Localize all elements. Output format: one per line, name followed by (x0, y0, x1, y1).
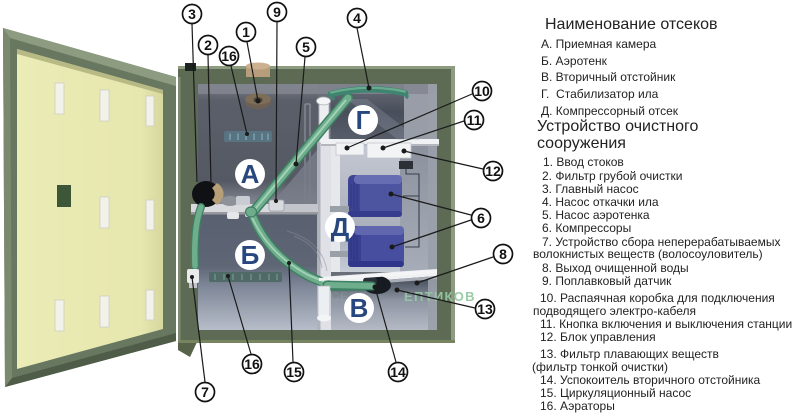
svg-text:8: 8 (499, 246, 507, 262)
svg-text:Д: Д (331, 212, 350, 242)
svg-text:11: 11 (467, 112, 482, 128)
svg-text:3: 3 (188, 6, 196, 22)
svg-text:Г: Г (356, 105, 371, 135)
svg-text:Б: Б (241, 240, 260, 270)
svg-text:12: 12 (485, 163, 501, 179)
svg-text:6: 6 (477, 210, 485, 226)
svg-text:В: В (350, 293, 369, 323)
svg-text:4: 4 (353, 10, 361, 26)
svg-text:ЕПТИКОВ: ЕПТИКОВ (404, 289, 476, 304)
svg-text:7: 7 (201, 384, 209, 400)
svg-text:16: 16 (244, 356, 260, 372)
svg-text:14: 14 (390, 364, 406, 380)
svg-text:1: 1 (242, 24, 250, 40)
svg-text:9: 9 (273, 4, 281, 20)
svg-text:13: 13 (477, 301, 493, 317)
svg-text:5: 5 (302, 39, 310, 55)
svg-text:10: 10 (474, 83, 490, 99)
svg-text:А: А (241, 159, 260, 189)
svg-text:16: 16 (221, 48, 237, 64)
svg-text:15: 15 (286, 364, 302, 380)
svg-text:2: 2 (204, 37, 212, 53)
